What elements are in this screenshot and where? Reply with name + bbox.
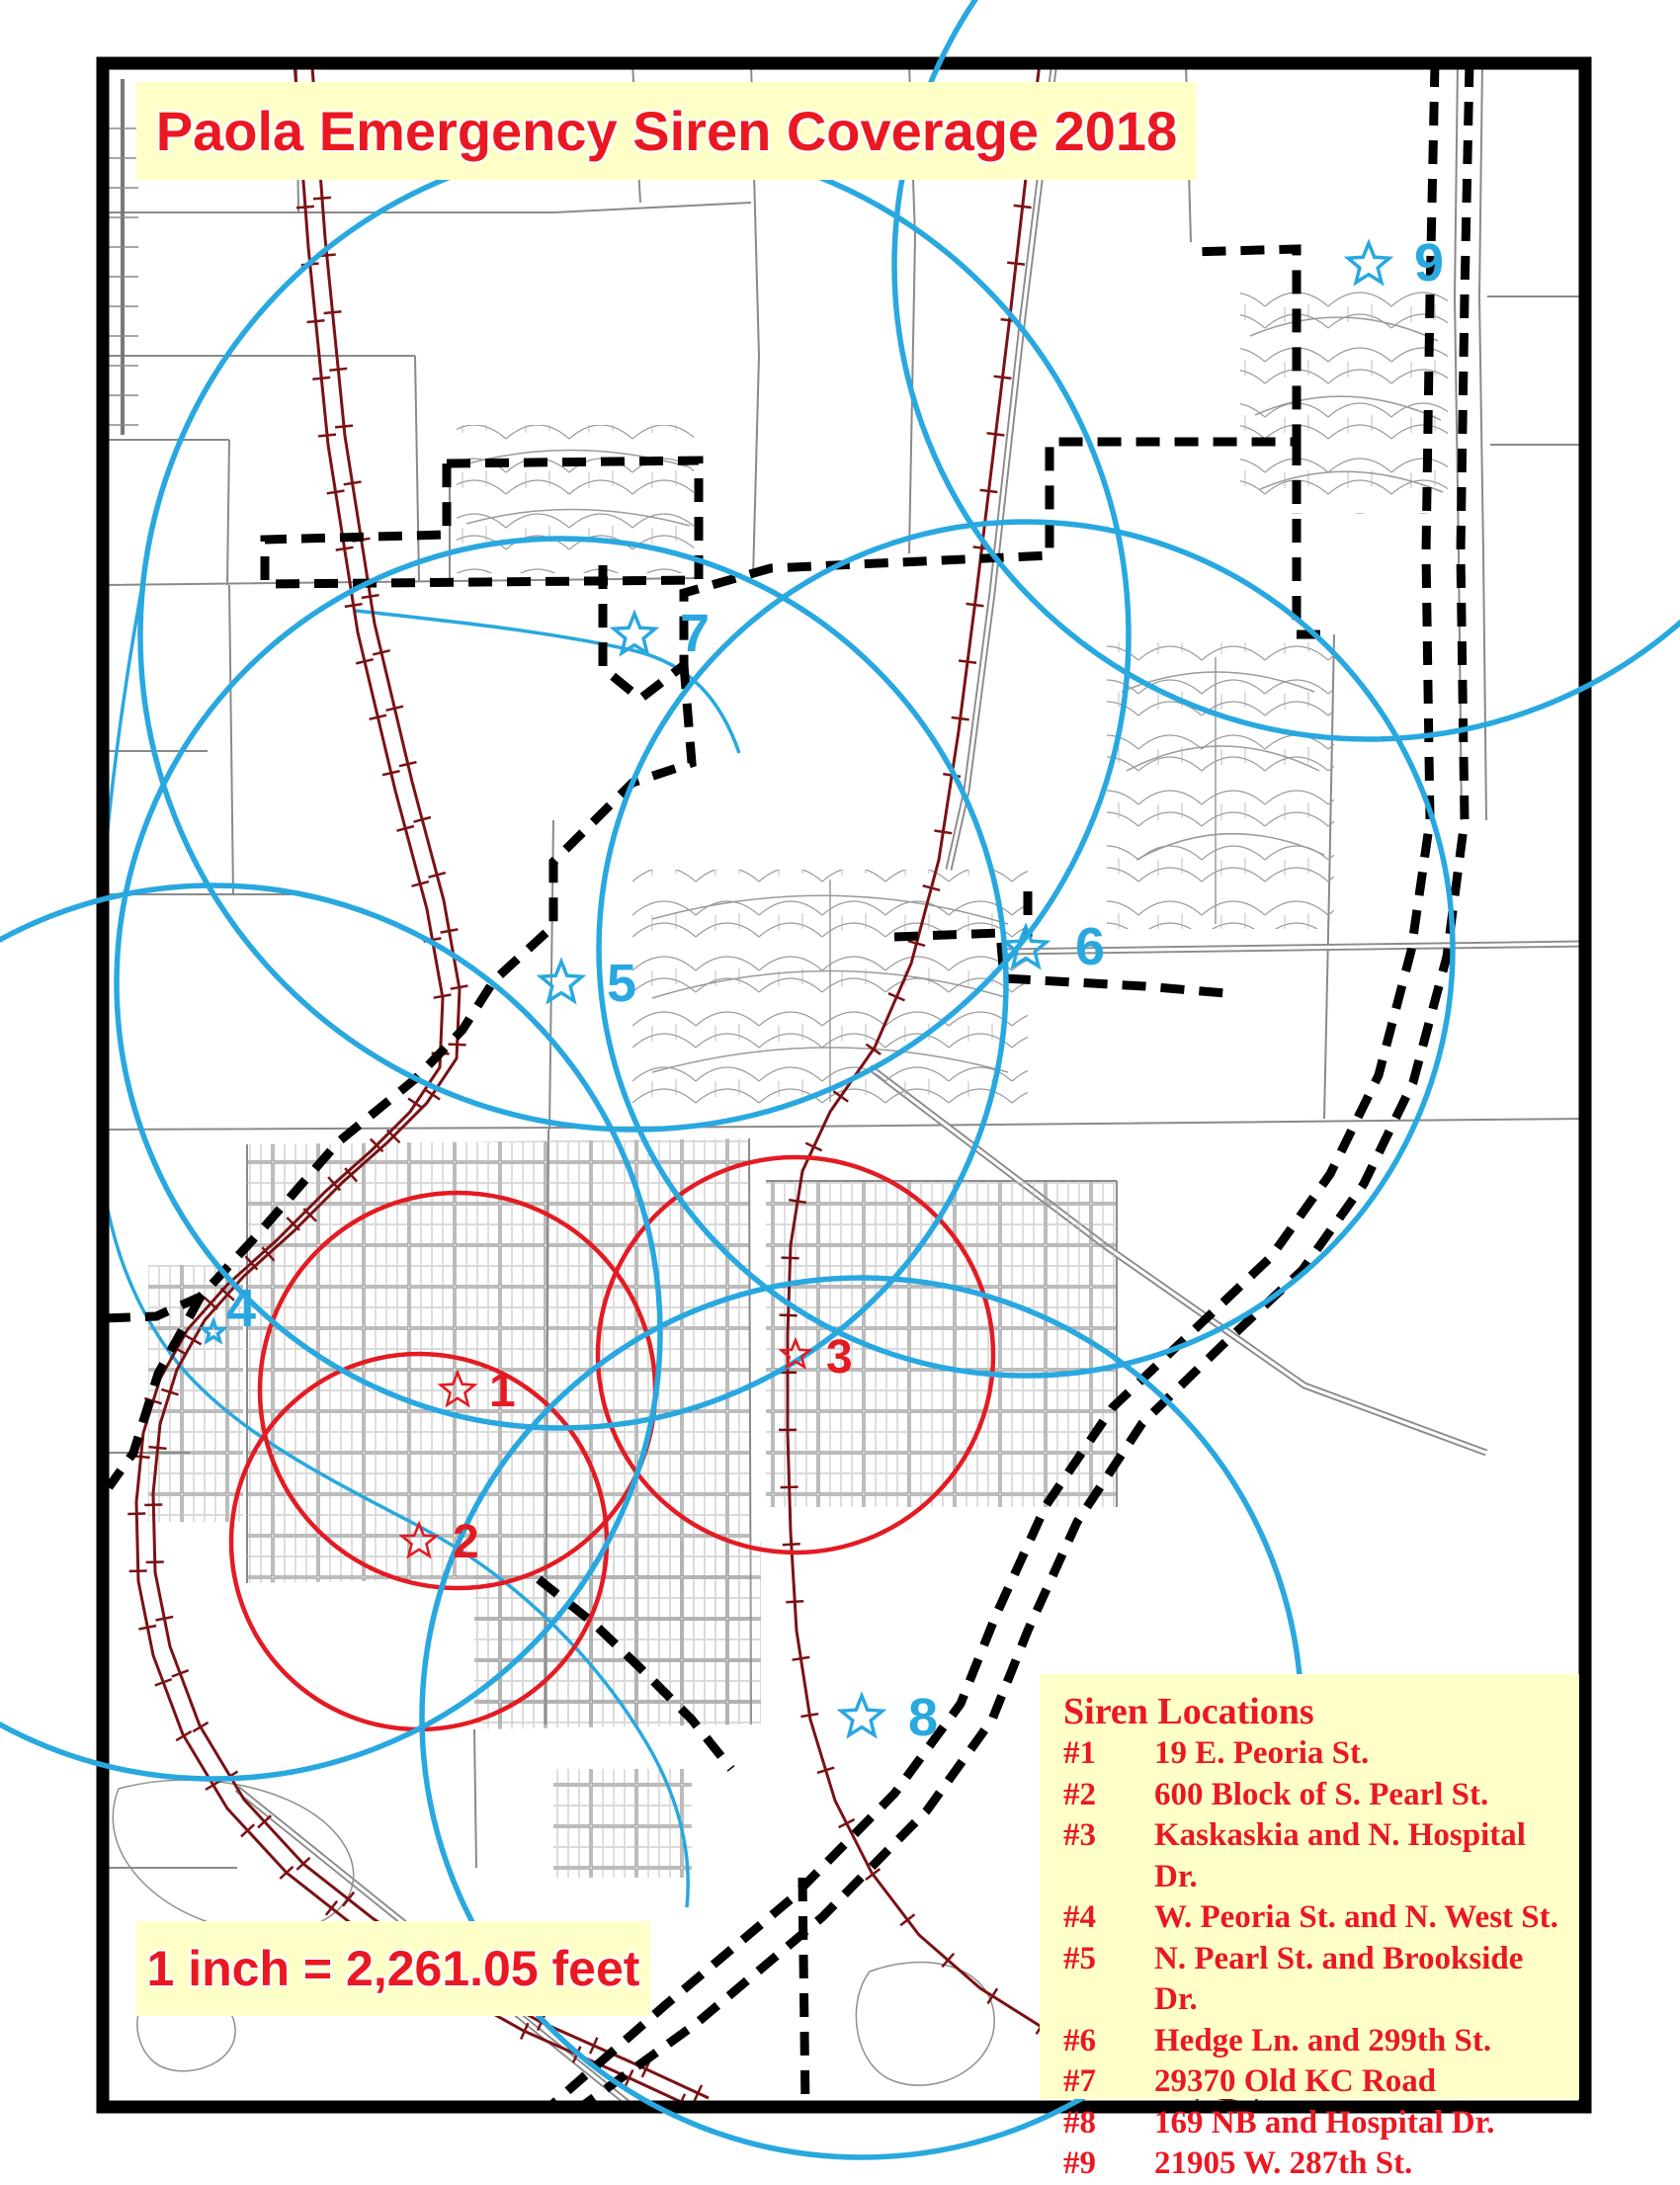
legend-item-2: #2 600 Block of S. Pearl St. [1063,1775,1573,1816]
siren-number-label: 3 [826,1331,853,1384]
legend-item-6: #6 Hedge Ln. and 299th St. [1063,2021,1573,2062]
legend-item-num: #4 [1063,1897,1154,1939]
siren-star-icon [841,1696,882,1735]
legend-item-label: Kaskaskia and N. Hospital Dr. [1154,1815,1573,1897]
legend-item-num: #8 [1063,2103,1154,2144]
legend-item-label: 169 NB and Hospital Dr. [1154,2103,1573,2144]
siren-number-label: 7 [680,604,710,663]
siren-marker-5: 5 [541,954,636,1013]
page: { "title": "Paola Emergency Siren Covera… [0,0,1680,2174]
siren-number-label: 6 [1075,917,1105,976]
legend-item-5: #5 N. Pearl St. and Brookside Dr. [1063,1939,1573,2021]
legend-item-num: #7 [1063,2061,1154,2103]
legend-item-7: #7 29370 Old KC Road [1063,2061,1573,2103]
legend-item-num: #5 [1063,1939,1154,2021]
legend-item-9: #9 21905 W. 287th St. [1063,2143,1573,2185]
legend-item-3: #3 Kaskaskia and N. Hospital Dr. [1063,1815,1573,1897]
legend-item-num: #3 [1063,1815,1154,1897]
siren-marker-7: 7 [614,604,710,663]
legend-item-num: #1 [1063,1733,1154,1775]
siren-star-icon [541,962,582,1001]
scale-box: 1 inch = 2,261.05 feet [136,1921,650,2016]
siren-number-label: 1 [489,1365,516,1417]
legend-item-4: #4 W. Peoria St. and N. West St. [1063,1897,1573,1939]
siren-number-label: 5 [607,954,636,1013]
siren-number-label: 2 [453,1516,479,1568]
siren-star-icon [1348,243,1389,283]
legend-box: Siren Locations #1 19 E. Peoria St. #2 6… [1040,1674,1579,2099]
legend-item-label: N. Pearl St. and Brookside Dr. [1154,1939,1573,2021]
legend-item-num: #9 [1063,2143,1154,2185]
legend-item-num: #6 [1063,2021,1154,2062]
scale-label: 1 inch = 2,261.05 feet [147,1940,640,1997]
map-title-box: Paola Emergency Siren Coverage 2018 [136,82,1197,180]
legend-title: Siren Locations [1063,1690,1573,1733]
siren-number-label: 9 [1414,233,1444,293]
siren-marker-8: 8 [841,1688,938,1747]
legend-item-label: Hedge Ln. and 299th St. [1154,2021,1573,2062]
legend-item-label: 19 E. Peoria St. [1154,1733,1573,1775]
legend-item-label: W. Peoria St. and N. West St. [1154,1897,1573,1939]
siren-marker-9: 9 [1348,233,1444,293]
siren-number-label: 8 [908,1688,938,1747]
siren-number-label: 4 [226,1279,256,1338]
legend-item-num: #2 [1063,1775,1154,1816]
legend-item-1: #1 19 E. Peoria St. [1063,1733,1573,1775]
legend-item-8: #8 169 NB and Hospital Dr. [1063,2103,1573,2144]
legend-item-label: 600 Block of S. Pearl St. [1154,1775,1573,1816]
legend-item-label: 21905 W. 287th St. [1154,2143,1573,2185]
legend-item-label: 29370 Old KC Road [1154,2061,1573,2103]
page-title: Paola Emergency Siren Coverage 2018 [156,99,1177,163]
